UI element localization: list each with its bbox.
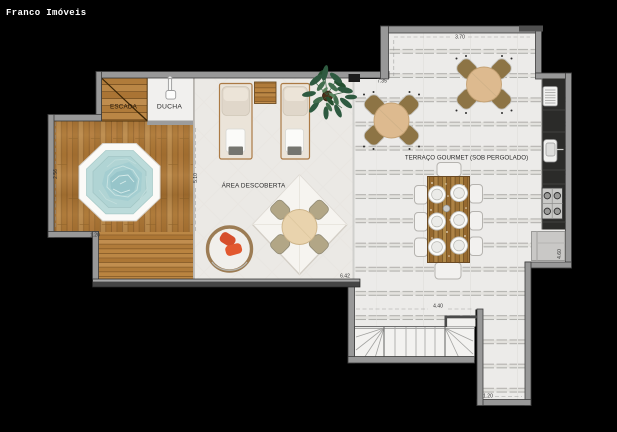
svg-text:4.60: 4.60 (557, 249, 563, 259)
svg-text:DUCHA: DUCHA (157, 104, 182, 111)
svg-text:4.40: 4.40 (433, 304, 443, 310)
svg-text:ESCADA: ESCADA (110, 104, 138, 111)
svg-text:7.35: 7.35 (377, 79, 387, 85)
svg-text:2.56: 2.56 (53, 169, 59, 179)
svg-text:6.42: 6.42 (340, 274, 350, 280)
svg-text:3.70: 3.70 (455, 35, 465, 41)
svg-text:5.10: 5.10 (193, 173, 199, 183)
svg-text:TERRAÇO GOURMET (SOB PERGOLADO: TERRAÇO GOURMET (SOB PERGOLADO) (405, 155, 528, 162)
svg-text:1.20: 1.20 (90, 232, 100, 238)
svg-text:ÁREA DESCOBERTA: ÁREA DESCOBERTA (222, 181, 286, 190)
svg-text:1.20: 1.20 (483, 394, 493, 400)
